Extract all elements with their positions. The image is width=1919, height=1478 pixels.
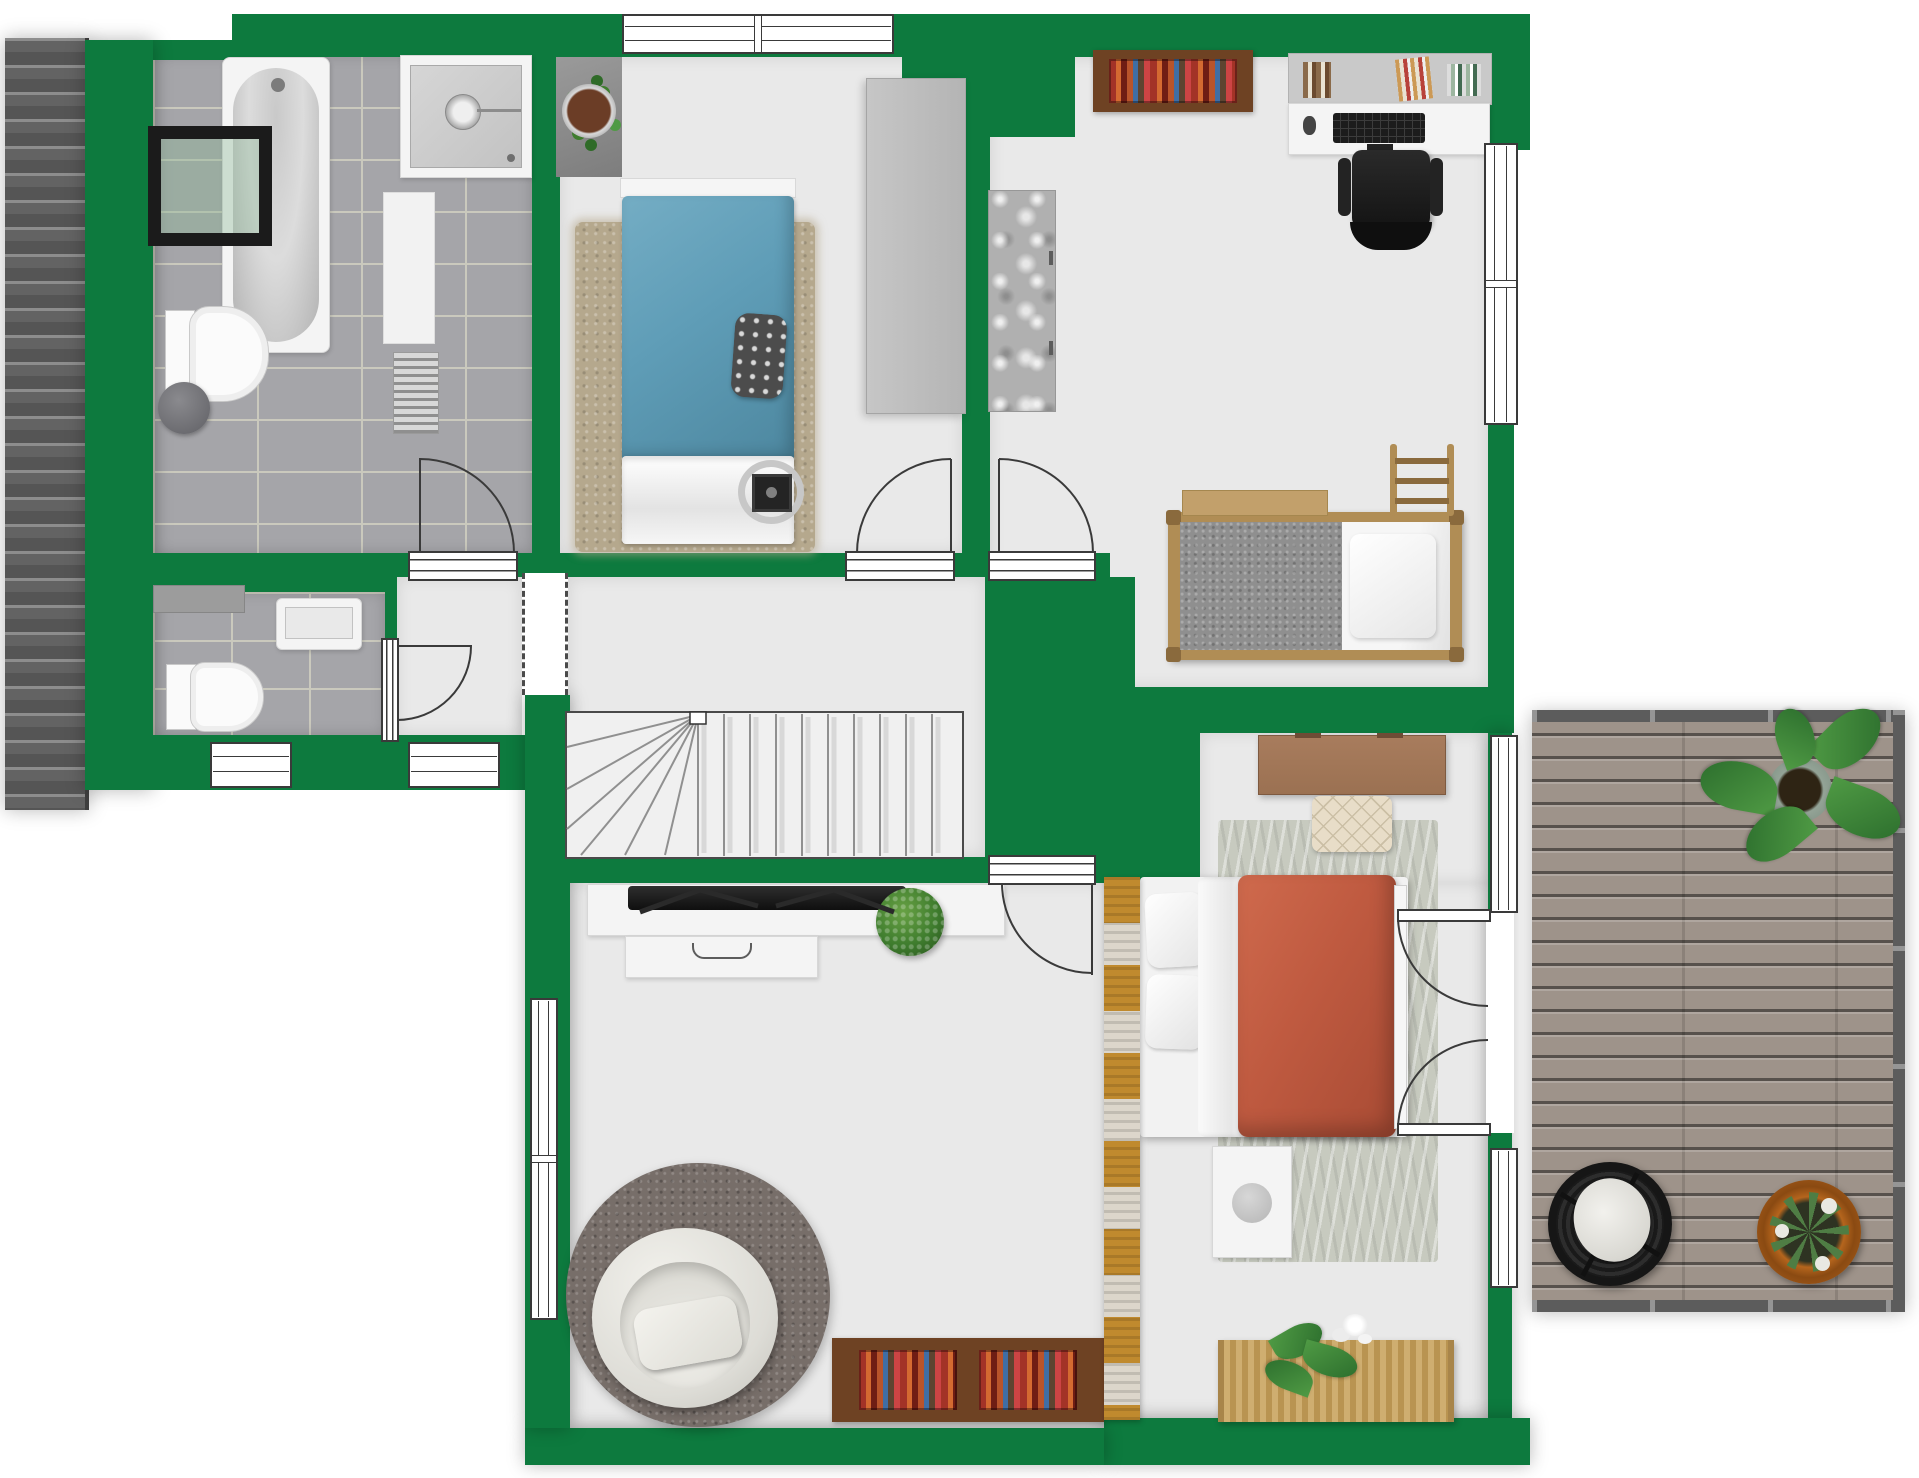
orchid-flower-icon: [1342, 1314, 1368, 1336]
bed-footboard: [1394, 885, 1407, 1129]
bed-pillow: [1144, 892, 1206, 969]
door-french-opening[interactable]: [1486, 913, 1514, 1133]
deck-rail-right: [1893, 710, 1905, 1312]
door-living-room[interactable]: [988, 855, 1096, 885]
desk-shelf[interactable]: [1288, 53, 1492, 105]
book-spines: [979, 1350, 1077, 1411]
loft-pillow: [1350, 534, 1436, 638]
wall-central-mass: [985, 577, 1135, 883]
window-bar: [213, 756, 289, 757]
drawer-unit[interactable]: [625, 936, 818, 978]
mouse-icon: [1303, 116, 1316, 135]
door-wc[interactable]: [381, 638, 399, 742]
armchair[interactable]: [592, 1228, 778, 1408]
window-master-upper[interactable]: [1490, 735, 1518, 913]
wc-sink-basin: [285, 607, 353, 639]
office-chair[interactable]: [1338, 146, 1442, 252]
book-spines: [859, 1350, 957, 1411]
window-sash-divider: [531, 1155, 557, 1163]
window-kids-east[interactable]: [1484, 143, 1518, 425]
window-sash-divider: [1485, 280, 1517, 288]
potted-agave[interactable]: [1757, 1180, 1861, 1284]
toilet-bowl: [190, 662, 264, 732]
ladder-rung: [1395, 478, 1449, 484]
wardrobe-handle-icon: [1049, 341, 1053, 355]
rattan-chair-cushion: [1564, 1169, 1660, 1271]
wall-bottom-living: [525, 1428, 1104, 1465]
desk-handle-icon: [1295, 733, 1321, 738]
window-bar: [1508, 738, 1509, 910]
wall-right-kids: [1488, 425, 1514, 733]
chair-armrest: [1338, 158, 1351, 216]
bookshelf-living[interactable]: [832, 1338, 1104, 1422]
window-master-lower[interactable]: [1490, 1148, 1518, 1288]
window-bedroom-top[interactable]: [622, 14, 894, 54]
winder-staircase[interactable]: [565, 711, 964, 859]
window-bar: [1498, 738, 1499, 910]
shower[interactable]: [400, 55, 532, 178]
wc-shelf[interactable]: [153, 585, 245, 613]
potted-plant-bedroom[interactable]: [562, 84, 616, 138]
wall-stairs-living: [525, 857, 990, 883]
woven-chest[interactable]: [1218, 1340, 1454, 1422]
bed-duvet-red: [1238, 875, 1396, 1137]
ladder-rung: [1395, 458, 1449, 464]
books-group-icon: [1447, 64, 1481, 96]
loft-bed[interactable]: [1168, 512, 1462, 660]
wardrobe-bedroom[interactable]: [866, 78, 966, 414]
wall-bedroom-kids: [962, 130, 990, 577]
window-bar: [213, 771, 289, 772]
window-sash-divider: [754, 15, 762, 53]
book-spines: [1109, 59, 1237, 104]
deck-rail-bottom: [1532, 1300, 1905, 1312]
nightstand-knob-icon: [1232, 1183, 1272, 1223]
drawer-handle-icon: [692, 943, 752, 959]
window-wc[interactable]: [210, 742, 292, 788]
window-bar: [1498, 1151, 1499, 1285]
potted-plant-living[interactable]: [876, 888, 944, 956]
towel-radiator[interactable]: [393, 352, 439, 434]
roof-window[interactable]: [148, 126, 272, 246]
loft-ladder[interactable]: [1390, 444, 1454, 516]
wall-central-mass-b: [1135, 687, 1200, 883]
bed-post-icon: [1166, 647, 1181, 662]
bed-post-icon: [1449, 647, 1464, 662]
bed-headboard: [620, 178, 796, 198]
door-bedroom-blue[interactable]: [845, 551, 955, 581]
window-bar: [411, 756, 497, 757]
ladder-rung: [1395, 498, 1449, 504]
wc-sink[interactable]: [276, 598, 362, 650]
tv[interactable]: [628, 886, 906, 910]
bed-pillow: [1145, 974, 1206, 1050]
agave-flower-icon: [1775, 1224, 1789, 1238]
window-living-west[interactable]: [530, 998, 558, 1320]
floor-speaker[interactable]: [752, 474, 792, 512]
agave-flower-icon: [1815, 1256, 1830, 1271]
chair-armrest: [1430, 158, 1443, 216]
shower-arm-icon: [477, 109, 521, 112]
open-passage[interactable]: [522, 573, 568, 695]
floor-plan-canvas: [0, 0, 1919, 1478]
loft-bed-shelf: [1182, 490, 1328, 516]
desk-master[interactable]: [1258, 735, 1446, 795]
window-bar: [1508, 1151, 1509, 1285]
firewood-rack[interactable]: [1104, 877, 1140, 1420]
upholstered-bench[interactable]: [1312, 796, 1392, 852]
chair-seat: [1352, 150, 1430, 228]
rattan-chair[interactable]: [1548, 1162, 1672, 1286]
roof-tiles-strip: [5, 38, 89, 810]
wardrobe-kids[interactable]: [988, 190, 1056, 412]
shower-drain-icon: [507, 154, 515, 162]
loft-mattress-gray: [1180, 522, 1342, 650]
books-group-icon: [1303, 62, 1331, 98]
bathtub-faucet-icon: [271, 78, 285, 92]
bed-double[interactable]: [1140, 877, 1408, 1137]
wall-bottom-right: [1104, 1418, 1530, 1465]
window-bar: [411, 771, 497, 772]
bath-mat: [383, 192, 435, 344]
bed-post-icon: [1166, 510, 1181, 525]
wardrobe-handle-icon: [1049, 251, 1053, 265]
door-kids-room[interactable]: [988, 551, 1096, 581]
wall-left-block: [85, 40, 153, 790]
desk-handle-icon: [1377, 733, 1403, 738]
speaker-cone-icon: [766, 487, 777, 498]
shower-head-icon: [445, 94, 481, 130]
keyboard[interactable]: [1333, 113, 1425, 143]
toilet-wc[interactable]: [166, 662, 266, 732]
patterned-pillow: [730, 312, 788, 399]
books-group-icon: [1395, 56, 1433, 101]
door-bathroom[interactable]: [408, 551, 518, 581]
bookshelf-kids[interactable]: [1093, 50, 1253, 112]
nightstand[interactable]: [1212, 1146, 1292, 1258]
waste-bin[interactable]: [158, 382, 210, 434]
agave-flower-icon: [1821, 1198, 1837, 1214]
room-hallway[interactable]: [397, 577, 522, 735]
window-hallway[interactable]: [408, 742, 500, 788]
chair-base: [1350, 222, 1432, 250]
